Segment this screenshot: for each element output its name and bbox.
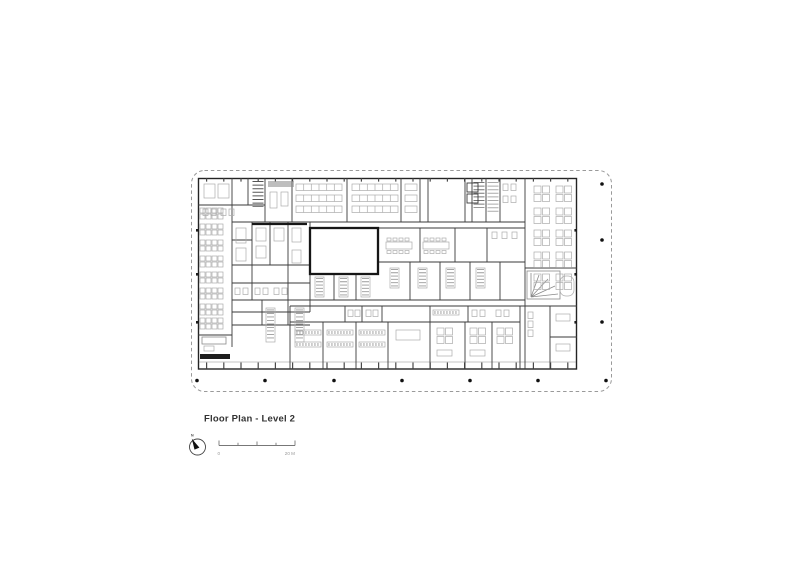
scale-bar: [219, 441, 295, 446]
drawing-sheet: Floor Plan - Level 2 N 0 20 M: [0, 0, 800, 565]
floor-plan-svg: Floor Plan - Level 2 N 0 20 M: [0, 0, 800, 565]
scale-end-label: 20 M: [285, 451, 295, 456]
scale-start-label: 0: [218, 451, 221, 456]
north-arrow-icon: N: [190, 434, 206, 456]
drawing-title: Floor Plan - Level 2: [204, 414, 295, 425]
escalator-bar: [200, 354, 230, 359]
north-label: N: [191, 434, 194, 438]
